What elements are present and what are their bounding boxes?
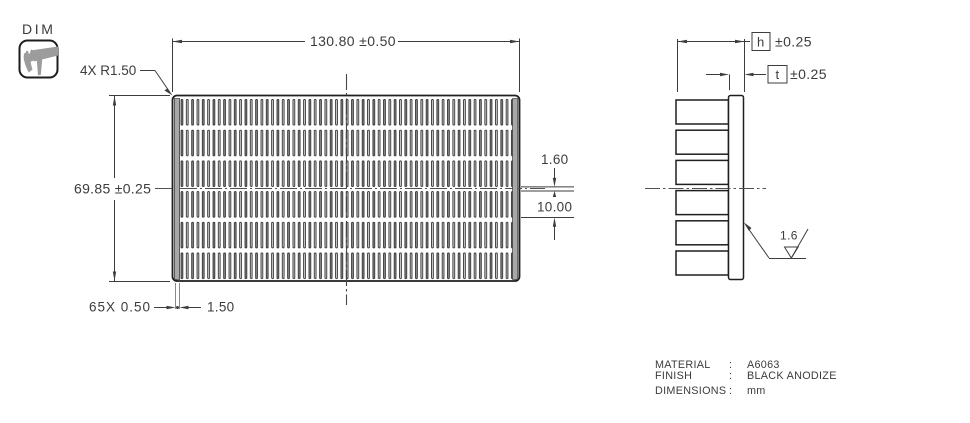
svg-text:69.85 ±0.25: 69.85 ±0.25 bbox=[74, 181, 151, 197]
svg-text:±0.25: ±0.25 bbox=[775, 34, 812, 50]
svg-text::: : bbox=[729, 370, 732, 382]
svg-text::: : bbox=[729, 385, 732, 397]
svg-text:4X R1.50: 4X R1.50 bbox=[80, 63, 136, 78]
svg-text:DIMENSIONS: DIMENSIONS bbox=[655, 385, 726, 397]
svg-text:1.60: 1.60 bbox=[541, 152, 568, 167]
svg-text:mm: mm bbox=[747, 385, 766, 397]
svg-text:FINISH: FINISH bbox=[655, 370, 692, 382]
svg-text:DIM: DIM bbox=[22, 21, 55, 37]
svg-text:1.50: 1.50 bbox=[207, 300, 234, 315]
svg-text:t: t bbox=[776, 67, 780, 82]
svg-text:h: h bbox=[757, 35, 764, 50]
svg-text:65X 0.50: 65X 0.50 bbox=[89, 300, 151, 315]
svg-text:1.6: 1.6 bbox=[780, 229, 798, 243]
svg-text:±0.25: ±0.25 bbox=[790, 66, 827, 82]
svg-text:BLACK ANODIZE: BLACK ANODIZE bbox=[747, 370, 837, 382]
svg-text:10.00: 10.00 bbox=[537, 200, 572, 215]
svg-text:130.80 ±0.50: 130.80 ±0.50 bbox=[310, 33, 396, 49]
